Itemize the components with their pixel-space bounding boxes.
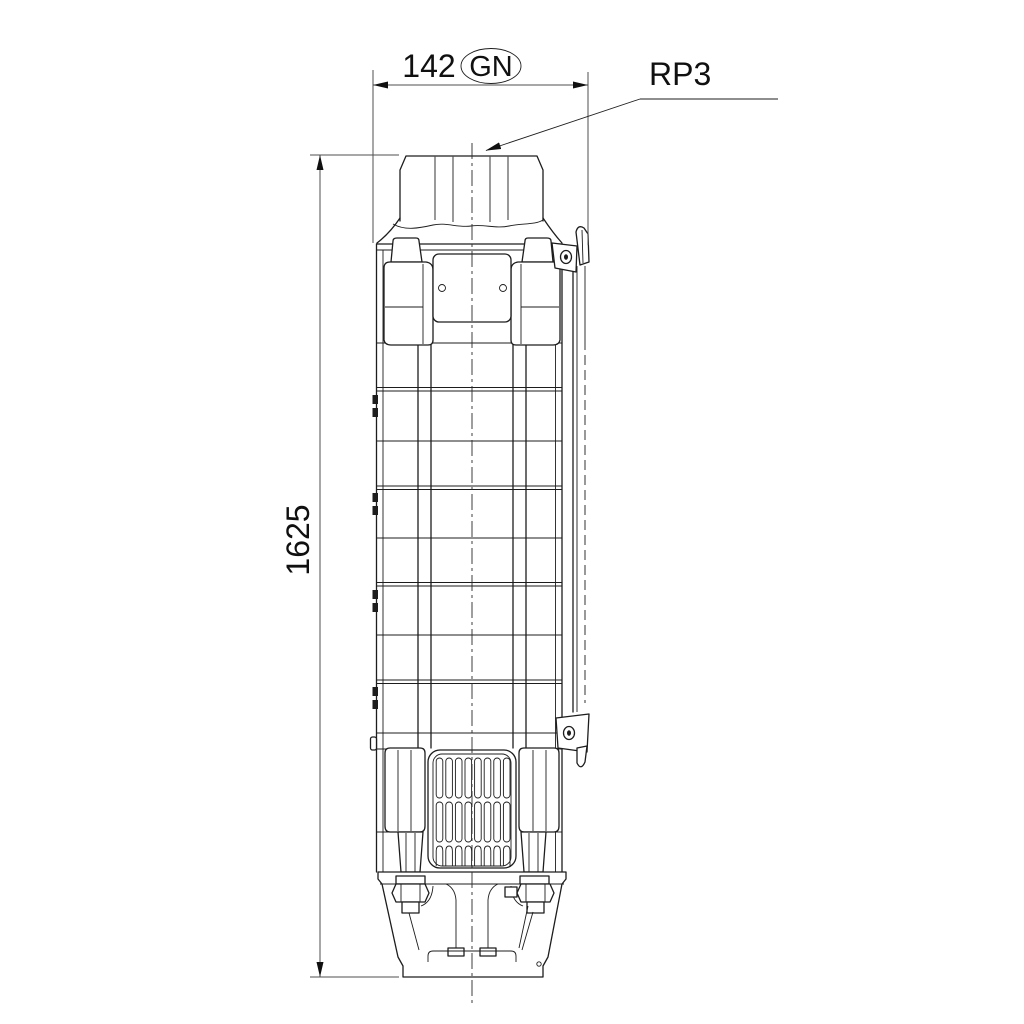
dim-arrow-right: [573, 82, 588, 89]
dim-arrow-bottom: [317, 962, 324, 977]
cable-guard-top-bracket: [552, 227, 589, 272]
pump-dimensional-drawing: 142 GN 1625 RP3: [0, 0, 1024, 1024]
height-dimension-value: 1625: [280, 504, 316, 575]
label-connection: RP3: [486, 56, 778, 151]
gn-tag-label: GN: [469, 51, 513, 83]
dimension-width: 142 GN: [373, 48, 588, 245]
dim-arrow-top: [317, 155, 324, 170]
leader-line-diagonal: [486, 99, 640, 151]
connection-label: RP3: [649, 56, 711, 92]
bolt-washer-right: [520, 876, 549, 884]
bolt-washer-left: [396, 876, 425, 884]
pump-drawing: [371, 156, 590, 977]
dimension-height: 1625: [280, 155, 399, 977]
discharge-thread: [393, 156, 543, 228]
drawing-canvas: 142 GN 1625 RP3: [0, 0, 1024, 1024]
width-dimension-value: 142: [402, 48, 455, 84]
dim-arrow-left: [373, 82, 388, 89]
cable-guard-bottom-bracket: [556, 714, 589, 767]
